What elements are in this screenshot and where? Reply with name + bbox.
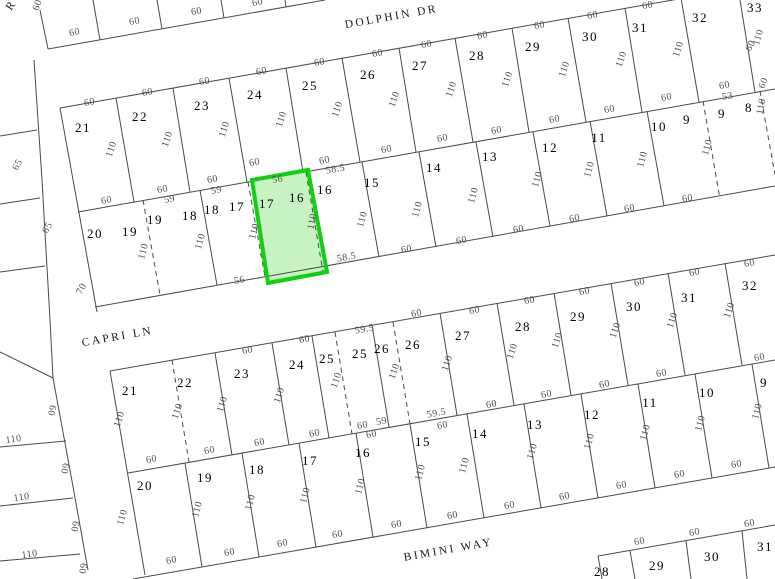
- lot-number-label: 33: [747, 0, 763, 15]
- lot-number-label: 23: [234, 366, 250, 381]
- dimension-label: 60: [533, 19, 546, 32]
- dimension-label: 59: [163, 193, 176, 206]
- dimension-label: 60: [633, 535, 646, 548]
- dimension-label: 60: [490, 124, 503, 137]
- dimension-label: 60: [241, 344, 254, 357]
- lot-number-label: 30: [704, 549, 720, 564]
- dimension-label: 60: [578, 285, 591, 298]
- dimension-label: 60: [476, 29, 489, 42]
- lot-number-label: 13: [482, 149, 498, 164]
- dimension-label: 60: [503, 499, 516, 512]
- dimension-label: 110: [21, 548, 39, 561]
- dimension-label: 60: [380, 143, 393, 156]
- dimension-label: 60: [660, 91, 673, 104]
- lot-number-label: 20: [87, 226, 103, 241]
- lot-number-label: 15: [364, 175, 380, 190]
- dimension-label: 56: [271, 173, 284, 186]
- lot-number-label: 23: [194, 98, 210, 113]
- lot-number-label: 28: [469, 48, 485, 63]
- dimension-label: 60: [730, 458, 743, 471]
- dimension-label: 110: [13, 491, 31, 504]
- dimension-label: 60: [68, 520, 81, 533]
- dimension-label: 60: [743, 517, 756, 530]
- lot-number-label: 24: [247, 87, 263, 102]
- lot-number-label: 10: [651, 119, 667, 134]
- dimension-label: 60: [586, 9, 599, 22]
- lot-number-label: 22: [177, 375, 193, 390]
- lot-number-label: 29: [570, 309, 586, 324]
- dimension-label: 60: [76, 562, 89, 575]
- dimension-label: 60: [253, 436, 266, 449]
- dimension-label: 60: [83, 96, 96, 109]
- dimension-label: 60: [141, 86, 154, 99]
- dimension-label: 59: [210, 184, 223, 197]
- lot-number-label: 26: [360, 67, 376, 82]
- lot-number-label: 28: [515, 319, 531, 334]
- lot-number-label: 11: [642, 395, 658, 410]
- lot-number-label: 9: [760, 375, 768, 390]
- dimension-label: 110: [5, 433, 23, 446]
- dimension-label: 60: [128, 15, 141, 28]
- dimension-label: 60: [512, 223, 525, 236]
- dimension-label: 60: [365, 428, 378, 441]
- lot-number-label: 32: [692, 10, 708, 25]
- lot-number-label: 18: [182, 208, 198, 223]
- lot-number-label: 21: [75, 120, 91, 135]
- lot-number-label: 31: [632, 20, 648, 35]
- dimension-label: 60: [203, 444, 216, 457]
- dimension-label: 60: [400, 243, 413, 256]
- dimension-label: 60: [420, 38, 433, 51]
- lot-number-label: 17: [229, 199, 245, 214]
- lot-number-label: 30: [626, 299, 642, 314]
- dimension-label: 60: [688, 526, 701, 539]
- lot-number-label: 9: [683, 112, 691, 127]
- dimension-label: 60: [436, 419, 449, 432]
- dimension-label: 60: [655, 367, 668, 380]
- lot-number-label: 16: [355, 445, 371, 460]
- lot-number-label: 30: [582, 29, 598, 44]
- dimension-label: 60: [58, 462, 71, 475]
- lot-number-label: 14: [426, 160, 442, 175]
- parcel-map[interactable]: 6060606060606060606060606060606011011011…: [0, 0, 775, 579]
- dimension-label: 60: [623, 202, 636, 215]
- lot-number-label: 18: [249, 462, 265, 477]
- dimension-label: 60: [68, 26, 81, 39]
- dimension-label: 60: [468, 304, 481, 317]
- dimension-label: 60: [100, 194, 113, 207]
- dimension-label: 56: [233, 274, 246, 287]
- lot-number-label: 26: [374, 341, 390, 356]
- lot-number-label: 20: [137, 478, 153, 493]
- lot-number-label: 12: [584, 407, 600, 422]
- lot-number-label: 19: [122, 224, 138, 239]
- map-background: [0, 0, 775, 579]
- dimension-label: 59: [375, 415, 388, 428]
- lot-number-label: 25: [319, 351, 335, 366]
- dimension-label: 60: [190, 5, 203, 18]
- dimension-label: 60: [313, 56, 326, 69]
- lot-number-label: 17: [302, 453, 318, 468]
- dimension-label: 60: [198, 75, 211, 88]
- dimension-label: 60: [633, 276, 646, 289]
- dimension-label: 60: [298, 333, 311, 346]
- dimension-label: 60: [410, 307, 423, 320]
- dimension-label: 60: [568, 212, 581, 225]
- lot-number-label: 10: [699, 385, 715, 400]
- lot-number-label: 16: [289, 190, 305, 205]
- dimension-label: 60: [436, 132, 449, 145]
- dimension-label: 60: [223, 546, 236, 559]
- dimension-label: 60: [753, 351, 766, 364]
- dimension-label: 60: [45, 404, 58, 417]
- dimension-label: 60: [371, 47, 384, 60]
- dimension-label: 60: [598, 378, 611, 391]
- lot-number-label: 11: [591, 130, 607, 145]
- lot-number-label: 25: [352, 346, 368, 361]
- lot-number-label: 21: [122, 383, 138, 398]
- lot-number-label: 12: [542, 140, 558, 155]
- dimension-label: 60: [558, 490, 571, 503]
- dimension-label: 60: [165, 554, 178, 567]
- dimension-label: 60: [681, 192, 694, 205]
- lot-number-label: 19: [147, 212, 163, 227]
- dimension-label: 60: [540, 388, 553, 401]
- dimension-label: 60: [331, 528, 344, 541]
- dimension-label: 60: [548, 113, 561, 126]
- lot-number-label: 13: [527, 417, 543, 432]
- dimension-label: 60: [743, 257, 756, 270]
- lot-number-label: 18: [204, 202, 220, 217]
- dimension-label: 60: [308, 427, 321, 440]
- dimension-label: 60: [718, 79, 731, 92]
- dimension-label: 60: [688, 266, 701, 279]
- dimension-label: 60: [455, 234, 468, 247]
- dimension-label: 60: [615, 479, 628, 492]
- lot-number-label: 29: [525, 39, 541, 54]
- lot-number-label: 22: [132, 109, 148, 124]
- dimension-label: 60: [641, 0, 654, 12]
- dimension-label: 60: [248, 156, 261, 169]
- lot-number-label: 25: [302, 78, 318, 93]
- lot-number-label: 28: [594, 564, 610, 579]
- lot-number-label: 17: [259, 196, 275, 211]
- dimension-label: 60: [145, 453, 158, 466]
- lot-number-label: 31: [681, 290, 697, 305]
- dimension-label: 60: [523, 294, 536, 307]
- lot-number-label: 26: [405, 337, 421, 352]
- lot-number-label: 15: [415, 434, 431, 449]
- dimension-label: 60: [485, 398, 498, 411]
- dimension-label: 60: [255, 65, 268, 78]
- map-canvas[interactable]: 6060606060606060606060606060606011011011…: [0, 0, 775, 579]
- lot-number-label: 29: [649, 558, 665, 573]
- lot-number-label: 24: [289, 357, 305, 372]
- lot-number-label: 27: [455, 328, 471, 343]
- lot-number-label: 19: [197, 470, 213, 485]
- lot-number-label: 8: [745, 100, 753, 115]
- dimension-label: 60: [390, 518, 403, 531]
- dimension-label: 60: [276, 537, 289, 550]
- lot-number-label: 9: [718, 106, 726, 121]
- lot-number-label: 27: [412, 58, 428, 73]
- lot-number-label: 14: [472, 426, 488, 441]
- lot-number-label: 16: [317, 182, 333, 197]
- dimension-label: 60: [446, 509, 459, 522]
- dimension-label: 60: [673, 468, 686, 481]
- lot-number-label: 32: [742, 278, 758, 293]
- dimension-label: 53: [721, 90, 734, 103]
- lot-number-label: 31: [757, 539, 773, 554]
- dimension-label: 60: [603, 103, 616, 116]
